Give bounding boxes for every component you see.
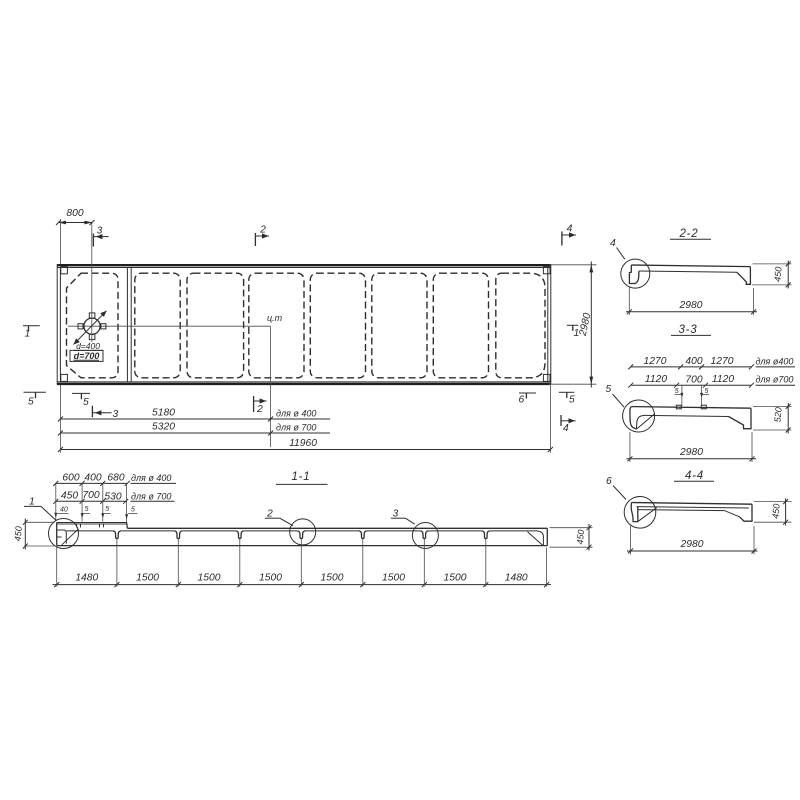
svg-text:40: 40 [60, 506, 68, 513]
svg-text:5320: 5320 [152, 422, 175, 433]
svg-text:1500: 1500 [382, 573, 405, 584]
svg-text:для ø 700: для ø 700 [276, 423, 316, 433]
svg-text:1-1: 1-1 [291, 471, 310, 483]
svg-text:1500: 1500 [198, 573, 221, 584]
svg-text:2980: 2980 [679, 447, 703, 458]
svg-text:d=400: d=400 [76, 341, 100, 351]
svg-text:400: 400 [685, 356, 702, 367]
svg-text:6: 6 [606, 476, 612, 487]
svg-text:700: 700 [685, 375, 702, 386]
svg-text:3: 3 [113, 409, 119, 420]
svg-text:1500: 1500 [444, 573, 467, 584]
svg-text:1: 1 [29, 497, 35, 508]
svg-text:450: 450 [61, 490, 78, 501]
svg-text:4: 4 [567, 224, 573, 235]
svg-text:600: 600 [62, 473, 79, 484]
svg-text:3: 3 [97, 226, 103, 237]
svg-text:1480: 1480 [75, 573, 98, 584]
svg-text:1: 1 [25, 329, 31, 340]
svg-text:2: 2 [259, 225, 266, 236]
svg-text:700: 700 [82, 490, 99, 501]
svg-text:2: 2 [256, 404, 263, 415]
svg-text:5: 5 [569, 395, 575, 406]
svg-text:5: 5 [606, 384, 612, 395]
svg-text:450: 450 [575, 529, 586, 545]
svg-text:520: 520 [772, 407, 783, 423]
svg-text:4: 4 [563, 423, 569, 434]
svg-text:5: 5 [131, 506, 135, 513]
svg-text:для ø 400: для ø 400 [276, 409, 316, 419]
svg-text:2980: 2980 [679, 300, 703, 311]
svg-text:4-4: 4-4 [685, 470, 704, 482]
svg-text:1120: 1120 [645, 374, 667, 385]
svg-text:3-3: 3-3 [678, 324, 697, 336]
svg-text:d=700: d=700 [74, 351, 100, 361]
svg-text:для ø400: для ø400 [756, 357, 794, 367]
svg-text:5: 5 [105, 506, 109, 513]
svg-text:ц.т: ц.т [267, 313, 283, 323]
svg-text:11960: 11960 [289, 438, 317, 449]
svg-text:1500: 1500 [136, 573, 159, 584]
svg-text:400: 400 [84, 473, 101, 484]
svg-text:450: 450 [772, 266, 783, 282]
svg-text:530: 530 [104, 491, 121, 502]
svg-text:1500: 1500 [321, 573, 344, 584]
svg-text:5: 5 [83, 397, 89, 408]
svg-text:4: 4 [610, 238, 616, 249]
svg-text:800: 800 [66, 208, 83, 219]
svg-text:5: 5 [705, 388, 709, 395]
svg-text:5180: 5180 [152, 408, 175, 419]
svg-text:2980: 2980 [680, 539, 704, 550]
svg-text:5: 5 [85, 506, 89, 513]
svg-text:1270: 1270 [711, 356, 734, 367]
svg-text:5: 5 [675, 388, 679, 395]
svg-text:для ø 400: для ø 400 [131, 473, 171, 483]
svg-text:1500: 1500 [259, 573, 282, 584]
svg-text:6: 6 [519, 395, 525, 406]
svg-text:для ø 700: для ø 700 [131, 491, 171, 501]
svg-text:1120: 1120 [712, 374, 734, 385]
svg-text:450: 450 [13, 526, 24, 542]
svg-text:680: 680 [107, 473, 124, 484]
svg-text:2-2: 2-2 [678, 228, 698, 240]
svg-text:для ø700: для ø700 [756, 375, 794, 385]
svg-text:450: 450 [770, 503, 781, 519]
svg-text:1270: 1270 [644, 356, 667, 367]
svg-text:1480: 1480 [505, 573, 528, 584]
svg-text:5: 5 [28, 397, 34, 408]
